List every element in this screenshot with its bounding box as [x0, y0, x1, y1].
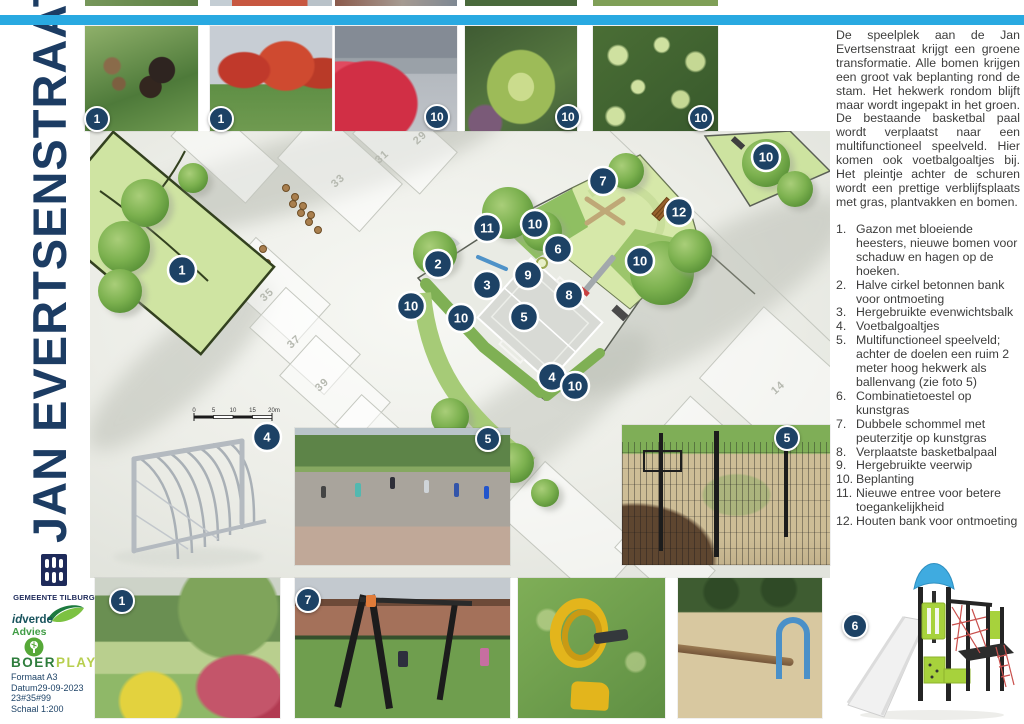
legend-item-4: 4.Voetbalgoaltjes	[836, 320, 1024, 334]
badge-photo-alder: 1	[84, 106, 110, 132]
legend-item-11: 11.Nieuwe entree voor betere toegankelij…	[836, 487, 1024, 515]
photo-sliver-street	[335, 0, 457, 6]
meta-datum: Datum29-09-2023	[11, 683, 84, 694]
meta-schaal: Schaal 1:200	[11, 704, 84, 715]
photo-sliver-maples	[210, 0, 332, 6]
top-accent-bar	[0, 15, 1024, 25]
badge-photo-fence: 5	[774, 425, 800, 451]
map-badge-10c: 10	[397, 292, 425, 320]
intro-paragraph: De speelplek aan de Jan Evertsenstraat k…	[836, 29, 1020, 210]
svg-text:10: 10	[633, 254, 647, 269]
legend-list: 1.Gazon met bloeiende heesters, nieuwe b…	[836, 223, 1024, 529]
combination-structure-render	[840, 545, 1024, 724]
badge-render-combi: 6	[842, 613, 868, 639]
badge-photo-court: 5	[475, 426, 501, 452]
svg-text:9: 9	[524, 268, 531, 283]
gemeente-tilburg-logo-block: GEMEENTE TILBURG	[10, 554, 98, 602]
svg-text:10: 10	[404, 299, 418, 314]
blue-arch	[776, 617, 810, 679]
plan-sheet: JAN EVERTSENSTRAAT	[0, 0, 1024, 724]
legend-item-2: 2.Halve cirkel betonnen bank voor ontmoe…	[836, 279, 1024, 307]
green-panel-upper	[922, 603, 945, 639]
spring-toy-base	[570, 681, 609, 711]
svg-text:12: 12	[672, 205, 686, 220]
legend-item-5: 5.Multifunctioneel speelveld; achter de …	[836, 334, 1024, 390]
map-badge-5: 5	[510, 303, 538, 331]
map-badge-10e: 10	[561, 372, 589, 400]
map-badge-8: 8	[555, 281, 583, 309]
swing-child	[480, 648, 489, 666]
map-badge-7: 7	[589, 167, 617, 195]
svg-text:4: 4	[263, 430, 271, 445]
svg-text:2: 2	[434, 257, 441, 272]
svg-text:20m: 20m	[268, 408, 280, 414]
svg-text:10: 10	[759, 150, 773, 165]
svg-text:8: 8	[565, 288, 572, 303]
badge-photo-ivy: 10	[688, 105, 714, 131]
svg-text:4: 4	[548, 370, 556, 385]
map-badge-3: 3	[473, 271, 501, 299]
legend-item-8: 8.Verplaatste basketbalpaal	[836, 446, 1024, 460]
meta-formaat: Formaat A3	[11, 672, 84, 683]
legend-item-3: 3.Hergebruikte evenwichtsbalk	[836, 306, 1024, 320]
badge-photo-shrubs: 10	[424, 104, 450, 130]
badge-photo-swing: 7	[295, 587, 321, 613]
boerplay-wordmark: BOERPLAY	[11, 655, 97, 670]
idverde-wordmark: idverde	[12, 614, 53, 626]
swing-child	[398, 651, 408, 667]
meta-projectnummer: 23#35#99	[11, 693, 84, 704]
svg-text:15: 15	[249, 408, 256, 414]
svg-text:10: 10	[454, 311, 468, 326]
svg-text:10: 10	[568, 379, 582, 394]
svg-text:5: 5	[520, 310, 527, 325]
goal-render-badge: 4	[253, 423, 281, 451]
swing-frame-leg	[368, 594, 393, 708]
legend-item-6: 6.Combinatietoestel op kunstgras	[836, 390, 1024, 418]
svg-text:3: 3	[483, 278, 490, 293]
legend-item-10: 10.Beplanting	[836, 473, 1024, 487]
fence-post	[784, 439, 788, 537]
legend-item-12: 12.Houten bank voor ontmoeting	[836, 515, 1024, 529]
boerplay-tree-icon	[24, 637, 44, 657]
map-badge-2: 2	[424, 250, 452, 278]
svg-text:6: 6	[554, 242, 561, 257]
fence-post	[714, 431, 719, 557]
map-badge-10a: 10	[521, 210, 549, 238]
photo-sliver-alder	[85, 0, 198, 6]
badge-photo-park: 1	[109, 588, 135, 614]
goal-silhouette	[643, 450, 682, 472]
legend-item-7: 7.Dubbele schommel met peuterzitje op ku…	[836, 418, 1024, 446]
svg-text:10: 10	[230, 408, 237, 414]
svg-text:1: 1	[178, 263, 185, 278]
legend-item-9: 9.Hergebruikte veerwip	[836, 459, 1024, 473]
photo-sand-balance-beam	[678, 578, 822, 718]
map-badge-9: 9	[514, 261, 542, 289]
swing-frame-leg	[437, 603, 458, 701]
sheet-metadata: Formaat A3 Datum29-09-2023 23#35#99 Scha…	[11, 672, 84, 714]
map-badge-12: 12	[665, 198, 693, 226]
page-title: JAN EVERTSENSTRAAT	[22, 0, 77, 543]
map-badge-6: 6	[544, 235, 572, 263]
map-badge-10b: 10	[626, 247, 654, 275]
legend-item-1: 1.Gazon met bloeiende heesters, nieuwe b…	[836, 223, 1024, 279]
photo-spring-toy	[518, 578, 665, 718]
photo-sliver-ivy	[593, 0, 718, 6]
photo-fenced-field	[622, 425, 830, 565]
map-badge-11: 11	[473, 214, 501, 242]
green-panel-lower	[924, 657, 945, 683]
badge-photo-maples: 1	[208, 106, 234, 132]
map-badge-10d: 10	[447, 304, 475, 332]
svg-text:10: 10	[528, 217, 542, 232]
tilburg-castle-icon	[41, 554, 67, 586]
svg-text:11: 11	[480, 221, 494, 236]
map-badge-10f: 10	[752, 143, 780, 171]
badge-photo-bush: 10	[555, 104, 581, 130]
swing-frame-leg	[334, 594, 367, 707]
map-badge-1: 1	[168, 256, 196, 284]
photo-swing-set	[295, 578, 510, 718]
photo-sliver-bush	[465, 0, 577, 6]
blue-canopy	[914, 564, 954, 590]
svg-text:7: 7	[599, 174, 606, 189]
swing-orange-cap	[366, 595, 376, 607]
photo-court-children	[295, 428, 510, 565]
